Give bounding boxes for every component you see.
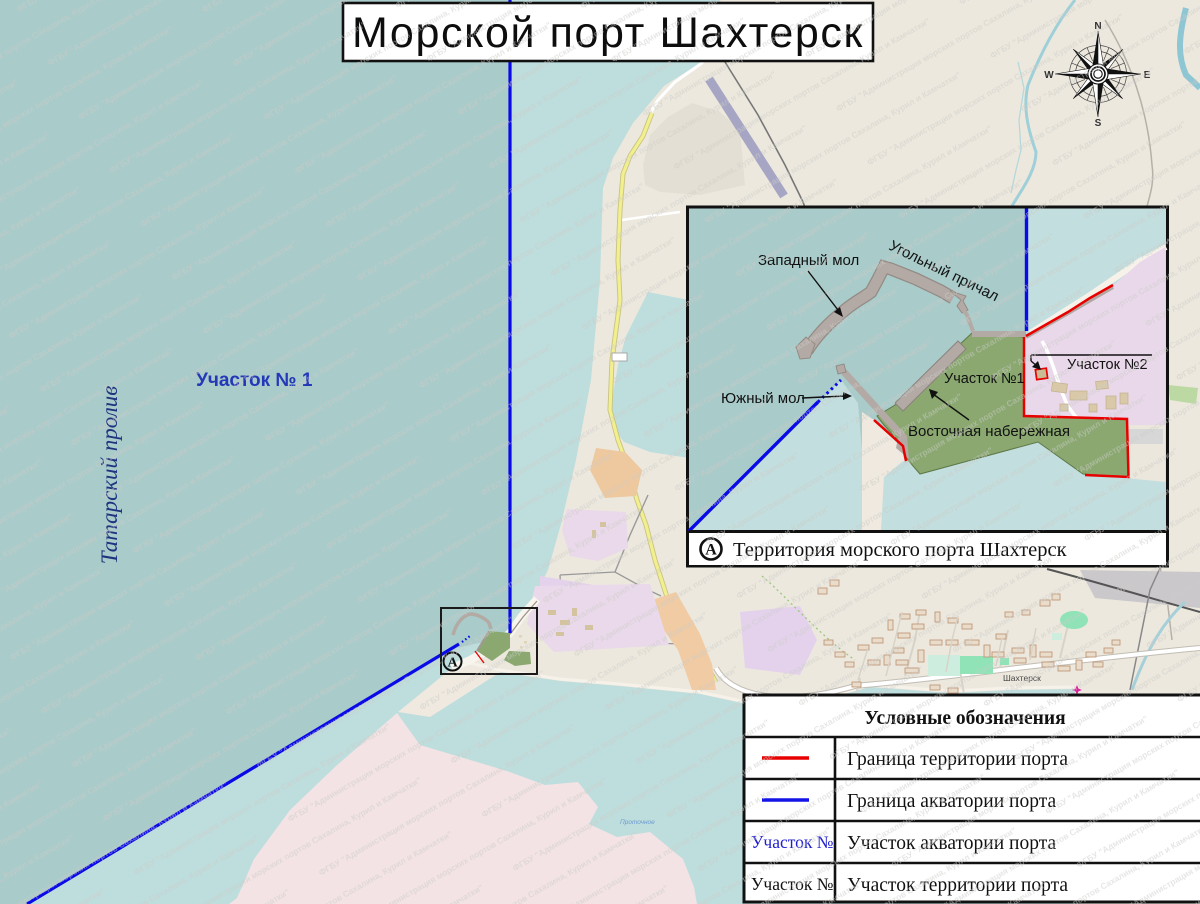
svg-text:W: W [1044, 70, 1054, 81]
svg-text:Участок №1: Участок №1 [944, 371, 1025, 387]
svg-text:Восточная набережная: Восточная набережная [908, 423, 1070, 440]
svg-text:Проточное: Проточное [620, 819, 655, 826]
svg-text:S: S [1095, 118, 1102, 129]
